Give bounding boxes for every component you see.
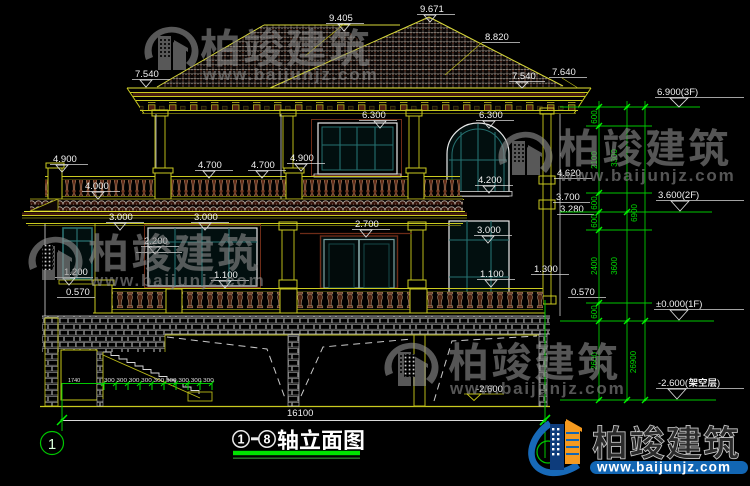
svg-text:1: 1 [238, 433, 245, 447]
svg-text:6.900(3F): 6.900(3F) [657, 87, 698, 98]
svg-text:600: 600 [590, 196, 599, 210]
svg-text:0.570: 0.570 [66, 287, 90, 298]
svg-text:8.820: 8.820 [485, 32, 509, 43]
svg-text:-2.600(: -2.600( [658, 378, 689, 389]
svg-text:6.300: 6.300 [362, 110, 386, 121]
svg-text:): ) [717, 378, 720, 389]
svg-text:3600: 3600 [610, 257, 619, 275]
svg-text:4.200: 4.200 [478, 175, 502, 186]
svg-text:4.000: 4.000 [85, 181, 109, 192]
svg-text:26900: 26900 [629, 350, 638, 373]
svg-text:2.700: 2.700 [355, 219, 379, 230]
svg-text:±0.000(1F): ±0.000(1F) [656, 299, 702, 310]
svg-text:3.000: 3.000 [109, 212, 133, 223]
svg-text:600: 600 [590, 305, 599, 319]
svg-text:7.540: 7.540 [512, 71, 536, 82]
svg-text:6900: 6900 [630, 204, 639, 222]
svg-text:1.100: 1.100 [480, 269, 504, 280]
svg-text:4.700: 4.700 [198, 160, 222, 171]
svg-text:0.570: 0.570 [571, 287, 595, 298]
svg-text:1.300: 1.300 [534, 264, 558, 275]
svg-text:4.900: 4.900 [290, 153, 314, 164]
svg-text:7.540: 7.540 [135, 69, 159, 80]
svg-text:www.baijunjz.com: www.baijunjz.com [559, 166, 736, 185]
svg-text:16100: 16100 [287, 408, 313, 419]
svg-text:www.baijunjz.com: www.baijunjz.com [89, 271, 266, 290]
svg-text:7.640: 7.640 [552, 67, 576, 78]
svg-text:6.300: 6.300 [479, 110, 503, 121]
svg-text:3.700: 3.700 [556, 192, 580, 203]
svg-text:1: 1 [48, 436, 56, 453]
svg-text:300 300 300 300 300 300 300 30: 300 300 300 300 300 300 300 300 300 [104, 378, 214, 384]
svg-text:www.baijunjz.com: www.baijunjz.com [202, 65, 379, 84]
svg-text:9.671: 9.671 [420, 4, 444, 15]
svg-text:600: 600 [590, 110, 599, 124]
svg-text:2400: 2400 [590, 257, 599, 275]
svg-text:600: 600 [590, 214, 599, 228]
svg-text:3.600(2F): 3.600(2F) [658, 190, 699, 201]
svg-text:8: 8 [264, 433, 271, 447]
svg-text:www.baijunjz.com: www.baijunjz.com [596, 460, 731, 475]
svg-text:3.000: 3.000 [477, 225, 501, 236]
svg-text:4.900: 4.900 [53, 154, 77, 165]
svg-text:4.700: 4.700 [251, 160, 275, 171]
svg-text:www.baijunjz.com: www.baijunjz.com [449, 379, 626, 398]
svg-text:3.000: 3.000 [194, 212, 218, 223]
svg-text:9.405: 9.405 [329, 13, 353, 24]
svg-text:3.280: 3.280 [560, 204, 584, 215]
